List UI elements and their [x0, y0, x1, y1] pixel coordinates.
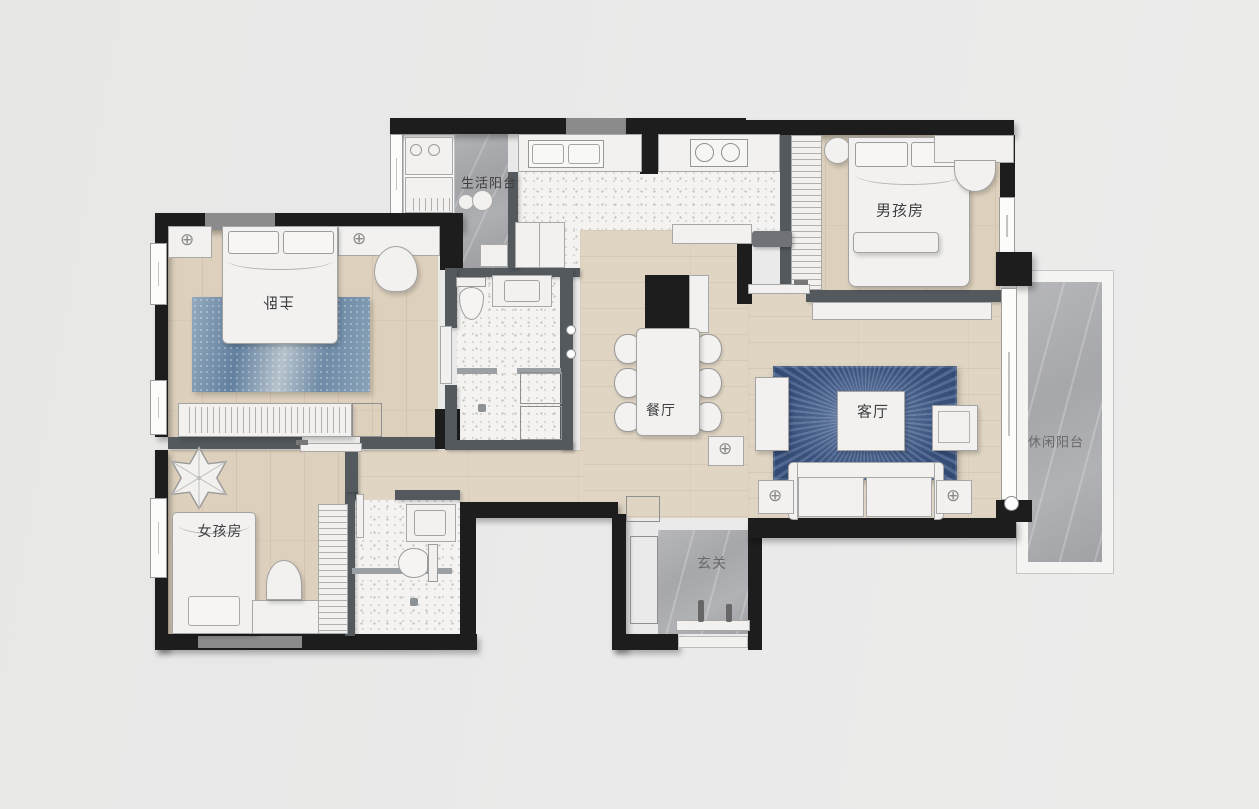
entry-door-leaf [676, 620, 750, 631]
floor-plan-canvas: ⊕ ⊕ [0, 0, 1259, 809]
side-table-inner [938, 411, 970, 443]
shaft-box-2 [520, 406, 562, 440]
shoe-cabinet-tall [630, 536, 658, 624]
kitchen-sink-basin-left [532, 144, 564, 164]
boys-door-handle [794, 280, 808, 285]
kitchen-sink-basin-right [568, 144, 600, 164]
stove-burner-left [695, 143, 714, 162]
wall-girls-corridor [345, 450, 358, 492]
balcony-door-knob [1004, 496, 1019, 511]
wall-girlsbath-top-2 [395, 490, 460, 500]
wall-kitchen-boys [780, 135, 791, 290]
shaft-box-1 [520, 372, 562, 404]
master-door-handle [296, 440, 308, 445]
kitchen-tall-cabinet [515, 222, 565, 268]
utility-bucket-large [472, 190, 493, 211]
room-label-girls-room: 女孩房 [198, 521, 243, 541]
bath-sliding-door [440, 326, 452, 384]
plant-target-icon: ⊕ [718, 441, 732, 458]
wall-foyer-bottom [612, 634, 678, 650]
dryer-vent [408, 198, 450, 211]
sofa-back [788, 462, 944, 478]
master-window-2 [150, 380, 167, 435]
dining-column [645, 275, 689, 333]
wall-boys-top [746, 120, 1014, 135]
master-window-1 [150, 243, 167, 305]
wall-master-bottom-2 [360, 437, 437, 449]
girls-desk [252, 600, 320, 634]
entry-threshold [678, 636, 748, 648]
cabinet-divider-line [539, 222, 540, 268]
bath-hook-2 [566, 349, 576, 359]
room-label-utility-balcony: 生活阳台 [461, 173, 517, 192]
room-label-leisure-balcony: 休闲阳台 [1028, 432, 1084, 451]
girlsbath-door-leaf [356, 494, 364, 538]
girls-toilet-bowl [398, 548, 428, 578]
washer-knob-1 [410, 144, 422, 156]
kitchen-counter-return [672, 224, 752, 244]
sofa-cushion-right [866, 477, 932, 517]
plant-target-icon: ⊕ [768, 488, 782, 505]
boys-shelf [934, 135, 1014, 163]
stove-burner-right [721, 143, 740, 162]
wall-corner-ne [996, 252, 1032, 286]
girlsbath-sink-basin [414, 510, 446, 536]
dining-column-cabinet [689, 275, 709, 333]
bath-sink-basin [504, 280, 540, 302]
utility-window [390, 134, 403, 214]
girls-window [150, 498, 167, 578]
wall-tv-partition [806, 290, 1004, 302]
boys-door-leaf [748, 284, 810, 294]
washer-unit [405, 137, 453, 175]
shoe-cabinet-small [626, 496, 660, 522]
wall-master-right [440, 213, 463, 270]
boys-wardrobe [791, 135, 822, 290]
master-chair [374, 246, 418, 292]
room-label-living-room: 客厅 [857, 401, 889, 422]
wall-bath-bottom [445, 440, 573, 450]
plant-target-icon: ⊕ [180, 232, 194, 249]
sofa-cushion-left [798, 477, 864, 517]
leisure-balcony-floor [1028, 282, 1102, 562]
girls-bottom-window [198, 636, 302, 648]
wall-step-vertical [460, 502, 476, 650]
wall-corridor-bottom [460, 502, 618, 518]
wall-kitchen-stub [640, 134, 658, 174]
wall-foyer-right [748, 534, 762, 650]
washer-knob-2 [428, 144, 440, 156]
wall-foyer-left [612, 514, 626, 650]
plant-target-icon: ⊕ [352, 231, 366, 248]
boys-stool [824, 137, 851, 164]
balcony-sliding-door [1001, 288, 1017, 500]
room-label-foyer: 玄关 [697, 553, 727, 573]
wall-top-window [566, 118, 626, 134]
room-label-dining-room: 餐厅 [646, 400, 676, 420]
master-bench-slats [184, 407, 346, 433]
plant-target-icon: ⊕ [946, 488, 960, 505]
entry-door-handle-1 [698, 600, 704, 622]
boys-window [999, 197, 1015, 255]
room-label-boys-room: 男孩房 [876, 200, 924, 221]
entry-door-handle-2 [726, 604, 732, 622]
corridor-floor [358, 450, 584, 502]
bath-shower-divider-1 [457, 368, 497, 374]
master-pillow-left [228, 231, 279, 254]
mop-sink [480, 244, 508, 267]
boys-pillow-left [855, 142, 908, 167]
master-pillow-right [283, 231, 334, 254]
boys-desk [853, 232, 939, 253]
girls-pillow [188, 596, 240, 626]
girls-parasol-decor [162, 446, 236, 510]
girls-wardrobe [318, 504, 348, 634]
wall-bath-left-lower [445, 385, 457, 443]
master-bench-endbox [352, 403, 382, 437]
bath-hook-1 [566, 325, 576, 335]
lounge-chair [755, 377, 789, 451]
shower-head-icon [478, 404, 486, 412]
bath-toilet-tank [456, 277, 486, 287]
room-label-master-bedroom: 主卧 [262, 293, 294, 314]
master-door-leaf [300, 443, 362, 452]
wall-top-2 [626, 118, 746, 134]
boys-blanket-arc [856, 165, 962, 185]
wall-top-1 [390, 118, 566, 134]
hall-console [752, 231, 792, 247]
girls-toilet-tank [428, 544, 438, 582]
tv-cabinet [812, 302, 992, 320]
girls-shower-head-icon [410, 598, 418, 606]
master-blanket-arc [228, 252, 332, 270]
wall-living-bottom [748, 518, 1016, 538]
